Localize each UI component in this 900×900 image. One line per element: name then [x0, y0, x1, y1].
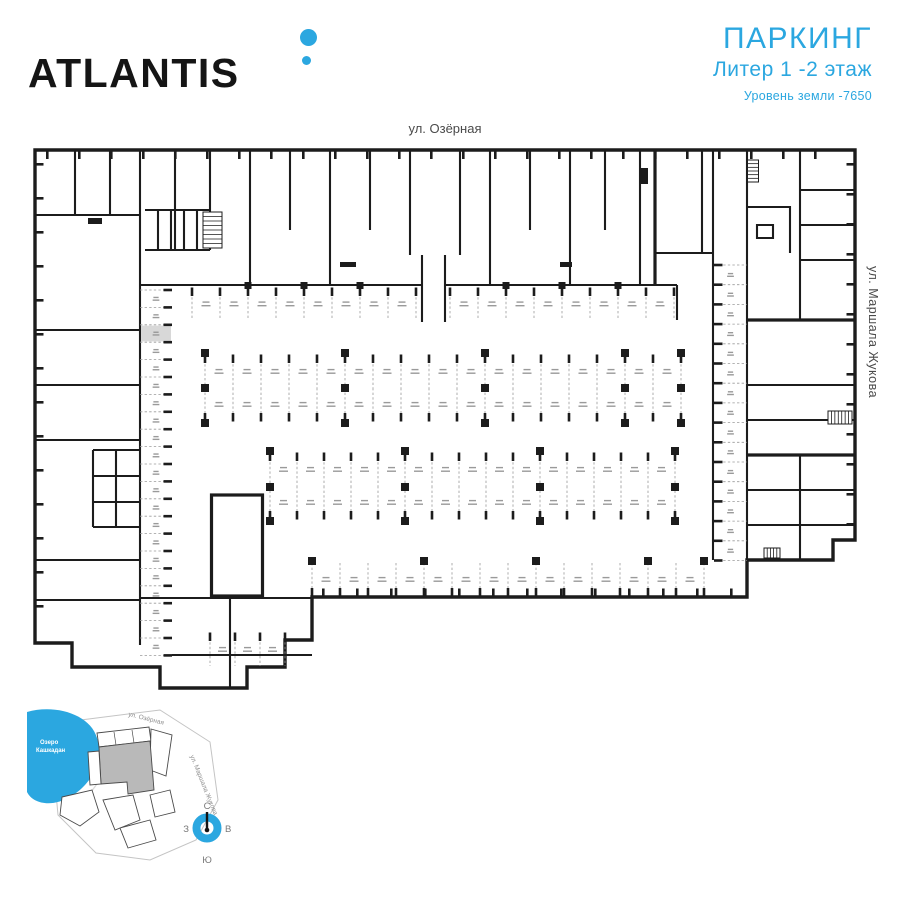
building: [150, 790, 175, 817]
building: [88, 751, 101, 785]
minimap-shapes: [27, 709, 218, 860]
page: ATLANTIS ПАРКИНГ Литер 1 -2 этаж Уровень…: [0, 0, 900, 900]
lake-label-line2: Кашкадан: [36, 748, 66, 754]
compass-south-label: Ю: [202, 855, 212, 866]
compass-north-label: С: [204, 801, 211, 812]
site-minimap: Озеро Кашкадан ул. Озёрная ул. Маршала Ж…: [0, 0, 900, 900]
compass-west-label: З: [183, 824, 189, 835]
compass-east-label: В: [225, 824, 231, 835]
compass-needle-hub-icon: [205, 828, 210, 833]
lake-label-line1: Озеро: [40, 740, 59, 746]
